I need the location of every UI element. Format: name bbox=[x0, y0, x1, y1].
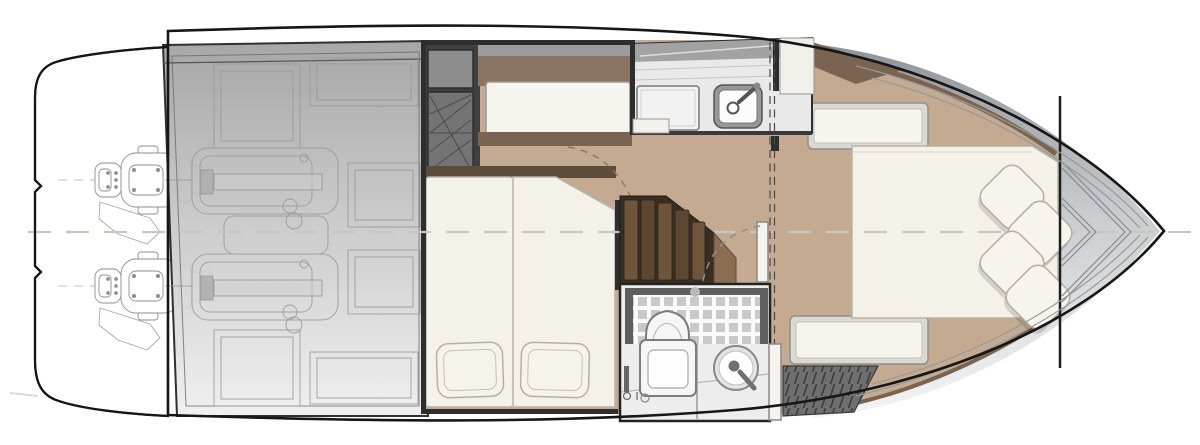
trim-tab-mark bbox=[10, 393, 38, 396]
head-door-leaf-open bbox=[757, 222, 768, 282]
bed-head-trim bbox=[422, 166, 616, 178]
vanity-shelf bbox=[486, 82, 630, 134]
pillow-left bbox=[436, 342, 504, 398]
wardrobe-top-locker bbox=[428, 50, 473, 88]
washbasin bbox=[714, 346, 758, 390]
cabin-wall-left bbox=[421, 42, 426, 414]
cabin-wall-bottom bbox=[422, 409, 618, 414]
head-door-leaf bbox=[769, 344, 781, 420]
galley bbox=[630, 38, 814, 151]
guest-cabin bbox=[421, 40, 633, 414]
cabin-wall-top bbox=[421, 40, 633, 45]
toilet bbox=[640, 311, 696, 396]
bench-top bbox=[808, 103, 928, 149]
floor-plan-canvas bbox=[0, 0, 1200, 445]
shower-drain bbox=[690, 287, 700, 297]
basin-faucet bbox=[729, 361, 740, 372]
pillow-right bbox=[520, 342, 589, 398]
galley-sink bbox=[714, 83, 762, 129]
engine-room bbox=[163, 41, 428, 416]
bench-bottom bbox=[790, 316, 928, 364]
cabin-wall-stairs bbox=[615, 200, 620, 290]
faucet-base bbox=[728, 103, 739, 114]
galley-end-cabinet bbox=[633, 119, 669, 133]
shelf-front-trim bbox=[478, 132, 632, 146]
yacht-floor-plan bbox=[0, 0, 1200, 445]
